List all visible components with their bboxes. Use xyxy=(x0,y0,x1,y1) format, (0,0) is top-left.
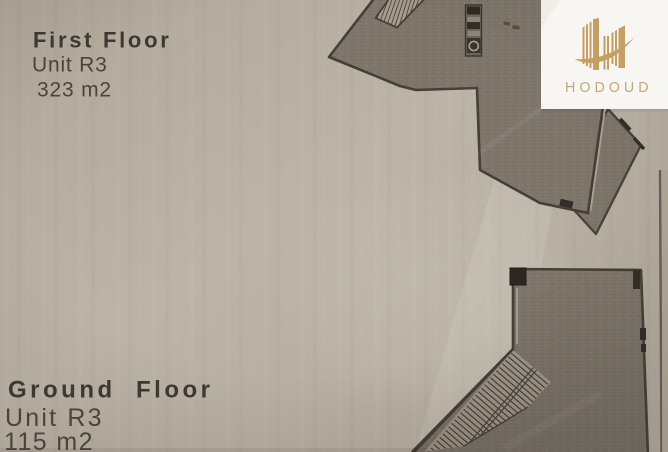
svg-text:HODOUD: HODOUD xyxy=(565,80,653,96)
svg-text:115 m2: 115 m2 xyxy=(4,428,94,452)
svg-text:323 m2: 323 m2 xyxy=(37,79,112,102)
svg-text:Unit R3: Unit R3 xyxy=(32,54,108,77)
svg-text:First Floor: First Floor xyxy=(33,28,171,53)
svg-text:Ground Floor: Ground Floor xyxy=(8,377,213,404)
